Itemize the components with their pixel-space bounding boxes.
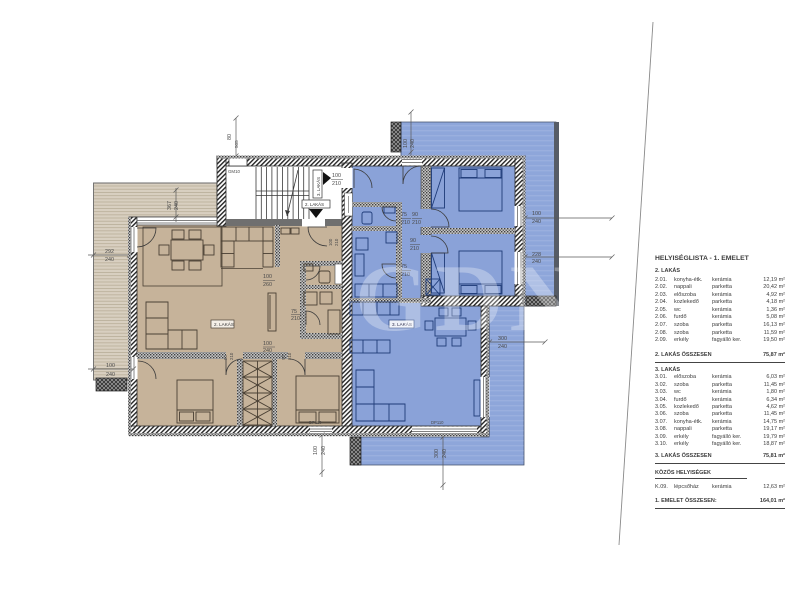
svg-text:240: 240 [263,348,272,354]
svg-text:210: 210 [401,220,410,226]
svg-text:75: 75 [401,212,407,218]
svg-text:240: 240 [442,449,448,458]
svg-text:90: 90 [223,355,228,360]
svg-text:100: 100 [332,173,341,179]
svg-text:100: 100 [403,139,409,148]
svg-text:240: 240 [410,139,416,148]
svg-text:260: 260 [263,282,272,288]
svg-text:90: 90 [281,355,286,360]
svg-text:210: 210 [412,220,421,226]
svg-text:2. LAKÁS: 2. LAKÁS [305,202,324,207]
svg-text:90: 90 [410,238,416,244]
svg-text:GM10: GM10 [228,169,241,174]
svg-text:240: 240 [106,372,115,378]
svg-text:GDN: GDN [355,245,584,351]
svg-text:300: 300 [434,449,440,458]
svg-text:367: 367 [167,201,173,210]
svg-text:DP110: DP110 [431,420,444,425]
svg-text:3. LAKÁS: 3. LAKÁS [316,177,321,196]
svg-text:240: 240 [105,257,114,263]
svg-text:210: 210 [291,316,300,322]
svg-text:100: 100 [263,341,272,347]
svg-text:210: 210 [229,352,234,360]
svg-text:75: 75 [291,309,297,315]
svg-text:240: 240 [174,201,180,210]
svg-text:210: 210 [334,238,339,246]
svg-text:100: 100 [532,211,541,217]
svg-text:240: 240 [532,219,541,225]
svg-text:210: 210 [332,181,341,187]
svg-text:90: 90 [412,212,418,218]
svg-text:2. LAKÁS: 2. LAKÁS [214,321,234,327]
svg-text:210: 210 [287,352,292,360]
svg-text:100: 100 [313,446,319,455]
svg-text:505: 505 [234,140,239,148]
svg-text:80: 80 [227,134,233,140]
svg-text:DP110: DP110 [309,420,322,425]
svg-text:100: 100 [106,363,115,369]
svg-text:292: 292 [105,249,114,255]
svg-text:100: 100 [263,274,272,280]
svg-text:100: 100 [328,238,333,246]
svg-text:240: 240 [321,446,327,455]
